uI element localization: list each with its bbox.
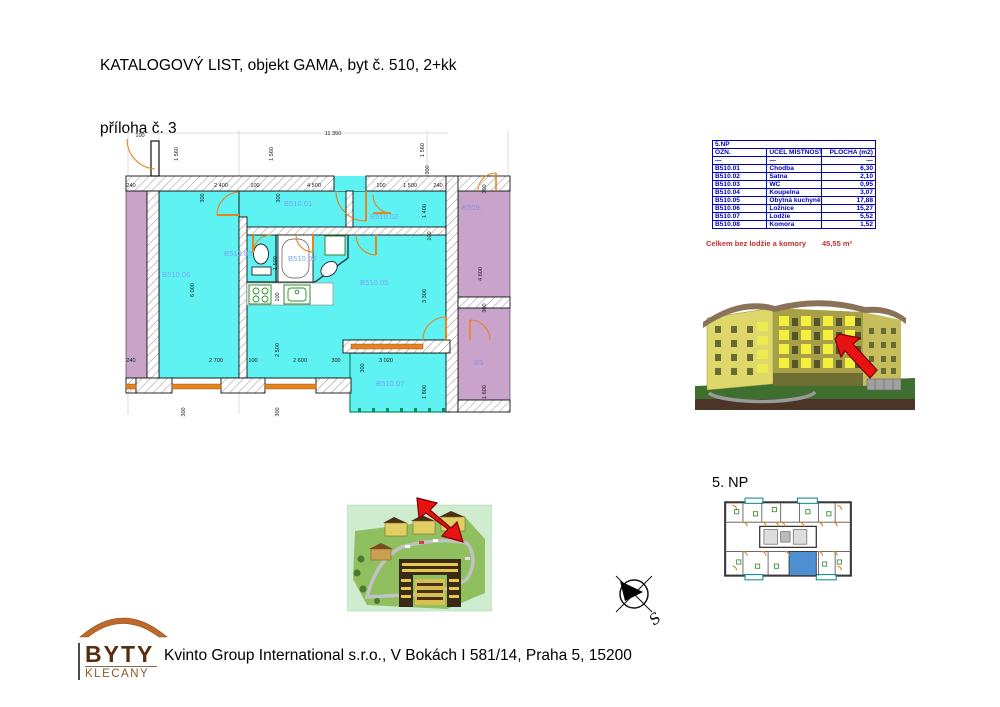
svg-text:2 500: 2 500 [275, 343, 281, 357]
svg-text:4 600: 4 600 [478, 267, 484, 281]
svg-text:300: 300 [482, 303, 488, 312]
svg-text:100: 100 [250, 183, 259, 189]
elevator [781, 532, 790, 542]
svg-text:100: 100 [135, 133, 144, 139]
building-left-face [707, 308, 773, 390]
svg-text:100: 100 [427, 231, 433, 240]
building-3d-view [695, 280, 915, 410]
table-row: B510.08Komora1,52 [713, 221, 876, 229]
svg-text:300: 300 [181, 407, 187, 416]
svg-text:1 560: 1 560 [174, 147, 180, 161]
svg-text:300: 300 [275, 407, 281, 416]
stairwell [764, 530, 778, 545]
svg-text:4 500: 4 500 [307, 183, 321, 189]
svg-text:240: 240 [126, 358, 135, 364]
svg-text:3 300: 3 300 [422, 289, 428, 303]
title-line-1: KATALOGOVÝ LIST, objekt GAMA, byt č. 510… [100, 55, 457, 76]
svg-text:B510.01: B510.01 [284, 199, 312, 208]
svg-text:240: 240 [433, 183, 442, 189]
room-area-table: 5.NP OZN. ÚČEL MÍSTNOSTI PLOCHA (m2) ———… [712, 140, 876, 229]
site-main-building [399, 559, 461, 607]
table-row: B510.03WC0,95 [713, 181, 876, 189]
svg-text:2 700: 2 700 [209, 358, 223, 364]
logo-line-1: BYTY [85, 643, 172, 665]
col-header-ozn: OZN. [713, 149, 767, 157]
ground-floor-band [773, 373, 863, 386]
svg-text:100: 100 [275, 292, 281, 301]
stairwell-2 [793, 530, 807, 545]
logo-line-2: KLECANY [85, 668, 172, 680]
svg-text:300: 300 [276, 193, 282, 202]
svg-text:3 020: 3 020 [379, 358, 393, 364]
svg-text:300: 300 [482, 184, 488, 193]
table-floor-header: 5.NP [713, 141, 876, 149]
table-row: B510.07Lodžie5,52 [713, 213, 876, 221]
washer-icon [325, 236, 345, 255]
svg-text:B510.04: B510.04 [288, 254, 316, 263]
svg-text:300: 300 [425, 165, 431, 174]
svg-text:B510.03: B510.03 [224, 249, 252, 258]
total-value: 45,55 m² [822, 239, 852, 248]
svg-text:1 600: 1 600 [482, 385, 488, 399]
svg-text:240: 240 [126, 183, 135, 189]
svg-text:B5: B5 [474, 358, 483, 367]
svg-text:300: 300 [360, 363, 366, 372]
svg-text:300: 300 [331, 358, 340, 364]
table-row: OZN. ÚČEL MÍSTNOSTI PLOCHA (m2) [713, 149, 876, 157]
total-label: Celkem bez lodžie a komory [706, 239, 806, 248]
svg-text:B510.06: B510.06 [162, 270, 190, 279]
svg-text:1 400: 1 400 [422, 204, 428, 218]
svg-text:B510.07: B510.07 [376, 379, 404, 388]
svg-text:1 500: 1 500 [403, 183, 417, 189]
svg-text:2 600: 2 600 [293, 358, 307, 364]
site-3d-view [347, 497, 492, 612]
highlighted-apartment [789, 552, 816, 576]
svg-text:300: 300 [200, 193, 206, 202]
toilet-icon [254, 244, 269, 264]
svg-text:6 000: 6 000 [190, 283, 196, 297]
svg-text:B510.05: B510.05 [360, 278, 388, 287]
svg-text:2 400: 2 400 [214, 183, 228, 189]
col-header-plocha: PLOCHA (m2) [821, 149, 875, 157]
compass-needle-icon [620, 581, 643, 601]
corridor-wall-stub [151, 141, 159, 176]
overview-floorplan [722, 497, 854, 583]
table-total-row: Celkem bez lodžie a komory 45,55 m² [706, 239, 878, 248]
svg-text:11 350: 11 350 [325, 131, 342, 137]
company-address: Kvinto Group International s.r.o., V Bok… [164, 647, 632, 665]
byty-klecany-logo: BYTY KLECANY [76, 608, 172, 680]
catalog-sheet-page: KATALOGOVÝ LIST, objekt GAMA, byt č. 510… [0, 0, 1000, 707]
table-row: 5.NP [713, 141, 876, 149]
entrance-opening [334, 176, 366, 191]
svg-text:1 800: 1 800 [422, 385, 428, 399]
table-row: B510.01Chodba6,30 [713, 165, 876, 173]
table-row: B510.04Koupelna3,07 [713, 189, 876, 197]
logo-arch-icon [76, 608, 172, 638]
table-row: B510.06Ložnice15,27 [713, 205, 876, 213]
table-row: ——— [713, 157, 876, 165]
north-label: S [645, 609, 664, 630]
svg-text:1 560: 1 560 [269, 147, 275, 161]
svg-text:B510.02: B510.02 [370, 212, 398, 221]
compass: S [610, 570, 674, 634]
svg-text:B509.: B509. [462, 203, 482, 212]
svg-text:100: 100 [376, 183, 385, 189]
svg-text:1 560: 1 560 [420, 143, 426, 157]
table-row: B510.05Obytná kuchyně17,88 [713, 197, 876, 205]
svg-text:1 500: 1 500 [273, 256, 279, 270]
table-row: B510.02Šatna2,10 [713, 173, 876, 181]
room-loznice [159, 191, 239, 378]
overview-floor-label: 5. NP [712, 475, 748, 491]
apartment-floorplan: B510.01B510.02B510.03B510.04B510.05B510.… [118, 122, 516, 417]
svg-text:100: 100 [248, 358, 257, 364]
col-header-ucel: ÚČEL MÍSTNOSTI [767, 149, 821, 157]
